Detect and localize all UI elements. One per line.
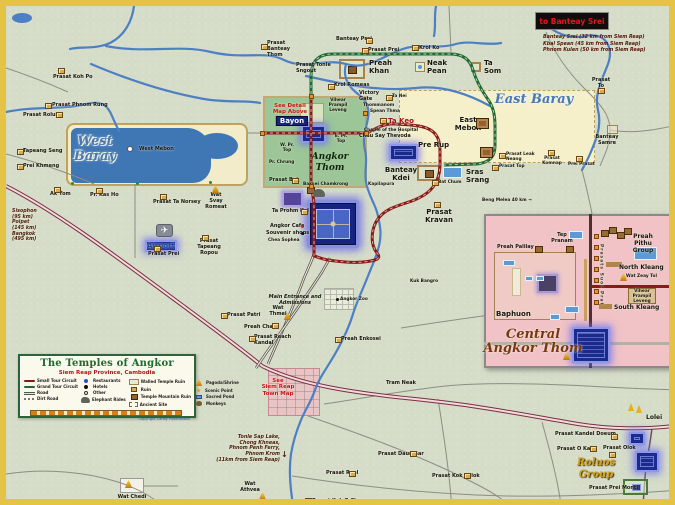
label-banteay-samre: Banteay Samre (595, 135, 618, 147)
ruin-icon (380, 118, 387, 124)
ruin-icon (499, 153, 506, 159)
legend-item: Temple Mountain Ruin (129, 394, 191, 400)
pagoda-icon (196, 379, 202, 386)
label-sisophon-95-km-poipet-145-km-ban: Sisophon (95 km) Poipet (145 km) Bangkok… (12, 209, 37, 243)
legend-title: The Temples of Angkor (20, 358, 194, 369)
label-ta-som: Ta Som (484, 59, 501, 76)
stupa-icon (628, 403, 634, 411)
elephant-icon (313, 189, 325, 197)
ruin-icon (221, 313, 228, 319)
label-prasat-tonle-sngout: Prasat Tonle Sngout (296, 63, 331, 75)
label-wat-svay-romeat: Wat Svay Romeat (205, 193, 227, 211)
label-prasat-kuk-o-chrung: Prasat Kuk O Chrung (312, 499, 371, 505)
gate-icon (260, 131, 265, 136)
legend-item-label: Small Tour Circuit (37, 379, 77, 383)
see-detail-note: See Detail Map Above (273, 103, 307, 116)
label-prasat-kok-thlok: Prasat Kok Thlok (432, 474, 480, 480)
legend-item: Walled Temple Ruin (129, 379, 191, 385)
ruin-icon (160, 194, 167, 200)
temple-mountain-icon (480, 147, 493, 158)
legend-item-label: Temple Mountain Ruin (141, 395, 191, 399)
label-vihear-prampil-leveng: Vihear Prampil Leveng (329, 98, 348, 113)
line-road-icon (24, 392, 35, 395)
ruin-icon (154, 246, 161, 252)
central-angkor-thom-title: Central Angkor Thom (483, 328, 582, 355)
gate-icon (364, 131, 369, 136)
walled-icon (129, 379, 139, 385)
temple-icon (131, 394, 138, 400)
small-walled-icon (607, 125, 618, 134)
label-prasat-reach-kandal: Prasat Reach Kandal (254, 335, 291, 347)
ruin-icon (492, 165, 499, 171)
legend-box: The Temples of Angkor Siem Reap Province… (18, 354, 196, 418)
label-prasat-prei: Prasat Prei (368, 48, 399, 54)
legend-item: Pagoda/Shrine (194, 379, 239, 386)
legend-item: Ancient Site (129, 402, 191, 407)
banteay-srei-note: Phnom Kulen (50 km from Siem Reap) (543, 48, 663, 55)
legend-item-label: Grand Tour Circuit (37, 385, 78, 389)
gate-icon (594, 300, 599, 305)
red-dot-icon (301, 225, 304, 228)
legend-item-label: Monkeys (206, 402, 226, 406)
small-temple-icon (535, 246, 543, 253)
see-town-map-note: See Siem Reap Town Map (262, 378, 295, 397)
label-prei-khmeng: Prei Khmeng (23, 164, 59, 170)
ruin-icon (611, 434, 618, 440)
temple-mountain-icon (476, 118, 489, 129)
gate-icon (363, 111, 368, 116)
green-dot-icon (136, 182, 139, 185)
dot-blue-icon (84, 379, 88, 383)
ruin-icon (576, 156, 583, 162)
label-spean-thma: Spean Thma (370, 109, 400, 114)
pagoda-icon (125, 480, 132, 488)
ruin-icon (464, 473, 471, 479)
pond-icon (196, 395, 202, 399)
star-icon (196, 388, 201, 393)
monkey-icon (196, 401, 202, 406)
legend-item: Dirt Road (24, 397, 78, 401)
banteay-srei-notes: Banteay Srei (32 km from Siem Reap)Kbal … (543, 35, 663, 55)
legend-column: Pagoda/ShrineScenic PointSacred PondMonk… (194, 379, 239, 409)
legend-item: Sacred Pond (194, 395, 239, 399)
label-ta-nei: Ta Nei (392, 94, 407, 99)
ruin-icon (17, 164, 24, 170)
ruin-icon (17, 149, 24, 155)
ruin-icon (412, 45, 419, 51)
label-tram-neak: Tram Neak (386, 381, 416, 387)
ruin-icon (335, 337, 342, 343)
ruin-icon (328, 84, 335, 90)
gate-icon (594, 289, 599, 294)
stupa-icon (636, 405, 642, 413)
legend-item-label: Ruin (141, 388, 151, 392)
ruin-icon (366, 38, 373, 44)
legend-item: Ruin (129, 387, 191, 392)
legend-item: Road (24, 391, 78, 395)
label-prasat-roluh: Prasat Roluh (23, 113, 59, 119)
label-tep-pranam: Tep Pranam (551, 233, 573, 245)
dot-icon (301, 232, 304, 235)
legend-item: Restaurants (81, 379, 126, 383)
ruin-icon (58, 68, 65, 74)
label-wat-athvea: Wat Athvea (240, 482, 260, 494)
legend-column: RestaurantsHotelsOtherElephant Rides (81, 379, 126, 409)
gate-icon (309, 184, 314, 189)
label-wat-chedi: Wat Chedi (118, 495, 147, 501)
label-prasat-patri: Prasat Patri (227, 313, 260, 319)
label-angkor-cafe: Angkor Cafe (270, 224, 304, 230)
green-dot-icon (209, 181, 212, 184)
label-prasat-ta-norsey: Prasat Ta Norsey (153, 200, 201, 206)
label-prasat-komnap: Prasat Komnap (542, 156, 562, 166)
label-wat-zeay-tol: Wat Zeay Tol (626, 274, 657, 279)
label-pr-chrung: Pr. Chrung (269, 160, 294, 165)
gate-icon (594, 256, 599, 261)
label-north-kleang: North Kleang (619, 264, 664, 271)
ruin-icon (609, 452, 616, 458)
ruin-icon (54, 187, 61, 193)
gate-icon (309, 94, 314, 99)
legend-item: Grand Tour Circuit (24, 385, 78, 389)
ruin-icon (598, 88, 605, 94)
label-preah-pithu-group: Preah Pithu Group (630, 233, 656, 254)
legend-item: Hotels (81, 385, 126, 389)
ruin-icon (261, 44, 268, 50)
legend-item: Small Tour Circuit (24, 379, 78, 383)
green-dot-icon (71, 182, 74, 185)
ruin-icon (410, 451, 417, 457)
legend-items: Small Tour CircuitGrand Tour CircuitRoad… (20, 376, 194, 409)
legend-column: Small Tour CircuitGrand Tour CircuitRoad… (24, 379, 78, 409)
ruin-icon (131, 387, 137, 392)
label-west-mebon: West Mebon (139, 147, 174, 153)
label-victory-gate: Victory Gate (359, 91, 379, 103)
label-kapilapura: Kapilapura (368, 182, 394, 187)
gate-icon (594, 278, 599, 283)
label-prasat-prei-monti: Prasat Prei Monti (589, 486, 638, 492)
gate-icon (594, 245, 599, 250)
label-ta-keo: Ta Keo (388, 117, 414, 125)
ruin-icon (45, 103, 52, 109)
dot-icon (336, 298, 339, 301)
label-prasat-phnom-rung: Prasat Phnom Rung (52, 103, 108, 109)
arrow-down-icon: ↓ (281, 450, 288, 459)
banteay-srei-flag: to Banteay Srei (535, 12, 609, 30)
legend-item-label: Scenic Point (205, 389, 233, 393)
ruin-icon (434, 202, 441, 208)
ruin-icon (432, 180, 439, 186)
legend-item-label: Road (37, 391, 48, 395)
legend-item: Other (81, 391, 126, 395)
label-prasat-koh-po: Prasat Koh Po (53, 75, 93, 81)
legend-item: Scenic Point (194, 388, 239, 393)
label-krol-romeas: Krol Romeas (334, 83, 369, 89)
label-wat-thmei: Wat Thmei (269, 306, 286, 318)
circle-icon (84, 391, 88, 395)
label-pre-rup: Pre Rup (418, 141, 449, 149)
label-prasat-leak-neang: Prasat Leak Neang (506, 152, 535, 162)
ruin-icon (349, 471, 356, 477)
airplane-icon: ✈ (156, 224, 173, 237)
label-bat-chum: Bat Chum (438, 180, 461, 185)
line-green-icon (24, 386, 35, 389)
pagoda-icon (212, 185, 219, 193)
legend-item-label: Restaurants (93, 379, 120, 383)
ruin-icon (386, 95, 393, 101)
label-neak-pean: Neak Pean (427, 59, 447, 76)
legend-item: Monkeys (194, 401, 239, 406)
label-lolei: Lolei (646, 414, 662, 421)
legend-item-label: Walled Temple Ruin (141, 380, 185, 384)
label-tapeang-seng: Tapeang Seng (23, 149, 63, 155)
legend-item-label: Sacred Pond (206, 395, 234, 399)
label-south-kleang: South Kleang (614, 304, 659, 311)
label-chea-sophea: Chea Sophea (268, 238, 300, 243)
ruin-icon (56, 112, 63, 118)
dot-black-icon (84, 385, 88, 389)
legend-item-label: Pagoda/Shrine (206, 381, 239, 385)
label-angkor-zoo: Angkor Zoo (340, 297, 368, 302)
ruin-icon (362, 48, 369, 54)
label-prasat-prei: Prasat Prei (148, 252, 179, 258)
banteay-srei-flag-label: to Banteay Srei (539, 17, 604, 26)
legend-copyright: Copyright Canby Publications (20, 417, 190, 421)
label-prasat-kandel-doeum: Prasat Kandel Doeum (555, 432, 616, 438)
site-icon (129, 402, 138, 407)
label-thommanom: Thommanom (363, 103, 394, 108)
label-preah-enkosei: Preah Enkosei (341, 337, 381, 343)
east-baray-label: East Baray (495, 92, 573, 107)
label-w-pr-top: W. Pr. Top (280, 143, 294, 153)
label-prasats-suor-prat: Prasats Suor Prat (598, 244, 603, 306)
banteay-srei-note: Banteay Srei (32 km from Siem Reap) (543, 35, 663, 42)
label-beng-melea-40-km: Beng Melea 40 km → (482, 198, 532, 203)
line-red-icon (24, 380, 35, 383)
label-prasat-tapeang-ropou: Prasat Tapeang Ropou (197, 239, 221, 257)
label-prasat-banteay-thom: Prasat Banteay Thom (267, 41, 290, 59)
legend-item-label: Hotels (93, 385, 107, 389)
eleph-icon (81, 397, 90, 403)
label-kuk-bangro: Kuk Bangro (410, 279, 438, 284)
legend-item: Elephant Rides (81, 397, 126, 403)
ruin-icon (249, 336, 256, 342)
gate-icon (594, 234, 599, 239)
ruin-icon (202, 235, 209, 241)
ruin-icon (305, 498, 312, 504)
label-prasat-olok: Prasat Olok (603, 446, 636, 452)
ruin-icon (292, 178, 299, 184)
angkor-thom-label: Angkor Thom (312, 152, 349, 173)
label-tonle-sap-lake-chong-khneas-phno: Tonle Sap Lake, Chong Khneas, Phnom Penh… (216, 435, 280, 463)
ruin-icon (590, 446, 597, 452)
legend-column: Walled Temple RuinRuinTemple Mountain Ru… (129, 379, 191, 409)
roluos-group-label: Roluos Group (577, 457, 615, 481)
ruin-icon (96, 188, 103, 194)
pagoda-icon (259, 492, 266, 500)
label-pr-kas-ho: Pr. Kas Ho (90, 193, 119, 199)
legend-item-label: Ancient Site (140, 403, 167, 407)
label-baphuon: Baphuon (496, 310, 531, 318)
label-prei-prasat: Prei Prasat (568, 162, 595, 167)
markers-layer: West BarayEast BarayAngkor ThomCentral A… (6, 6, 669, 499)
label-prasat-top: Prasat Top (499, 164, 525, 169)
small-temple-icon (609, 227, 617, 234)
label-e-pr-top: E. Pr. Top (335, 134, 347, 144)
label-vihear-prampil-leveng: Vihear Prampil Leveng (633, 289, 652, 304)
small-temple-icon (601, 230, 609, 237)
angkor-temples-map: West BarayEast BarayAngkor ThomCentral A… (0, 0, 675, 505)
label-preah-palilay: Preah Palilay (497, 245, 534, 251)
ruin-icon (548, 150, 555, 156)
legend-item-label: Dirt Road (37, 397, 58, 401)
ruin-icon (272, 323, 279, 329)
label-banteay-kdei: Banteay Kdei (385, 166, 417, 183)
line-dirt-icon (24, 398, 35, 400)
legend-item-label: Elephant Rides (92, 398, 126, 402)
small-temple-icon (566, 246, 574, 253)
scale-bar (30, 410, 182, 416)
west-baray-label: West Baray (74, 134, 116, 165)
legend-item-label: Other (93, 391, 106, 395)
label-preah-khan: Preah Khan (369, 59, 392, 76)
bayon-label: Bayon (276, 116, 308, 126)
west-mebon-dot-icon (127, 146, 133, 152)
label-krol-ko: Krol Ko (419, 46, 439, 52)
gate-icon (594, 267, 599, 272)
label-sras-srang: Sras Srang (466, 168, 489, 185)
small-temple-icon (624, 228, 632, 235)
ruin-icon (301, 209, 308, 215)
label-prasat-kravan: Prasat Kravan (425, 208, 453, 225)
